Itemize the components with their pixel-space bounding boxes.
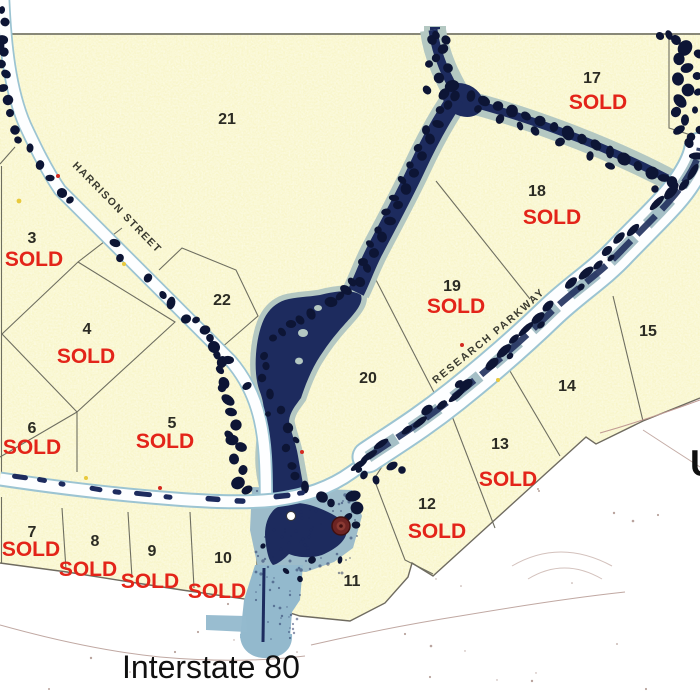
svg-text:Interstate 80: Interstate 80 bbox=[122, 649, 300, 685]
svg-text:14: 14 bbox=[558, 378, 576, 395]
svg-text:4: 4 bbox=[83, 321, 92, 338]
svg-text:9: 9 bbox=[148, 543, 157, 560]
svg-text:SOLD: SOLD bbox=[427, 295, 485, 318]
svg-text:11: 11 bbox=[344, 573, 361, 590]
svg-text:SOLD: SOLD bbox=[408, 520, 466, 543]
svg-text:18: 18 bbox=[528, 183, 546, 200]
svg-text:SOLD: SOLD bbox=[121, 570, 179, 593]
svg-text:15: 15 bbox=[639, 323, 657, 340]
svg-text:U: U bbox=[690, 443, 700, 484]
svg-text:13: 13 bbox=[491, 436, 509, 453]
svg-text:SOLD: SOLD bbox=[5, 248, 63, 271]
svg-text:SOLD: SOLD bbox=[57, 345, 115, 368]
svg-text:SOLD: SOLD bbox=[569, 91, 627, 114]
svg-text:SOLD: SOLD bbox=[188, 580, 246, 603]
svg-text:6: 6 bbox=[28, 420, 37, 437]
svg-text:SOLD: SOLD bbox=[523, 206, 581, 229]
svg-text:SOLD: SOLD bbox=[59, 558, 117, 581]
svg-text:8: 8 bbox=[91, 533, 100, 550]
svg-text:17: 17 bbox=[583, 70, 601, 87]
svg-text:SOLD: SOLD bbox=[3, 436, 61, 459]
svg-text:10: 10 bbox=[214, 550, 232, 567]
svg-text:12: 12 bbox=[418, 496, 436, 513]
svg-text:21: 21 bbox=[218, 111, 236, 128]
svg-text:3: 3 bbox=[28, 230, 37, 247]
svg-text:SOLD: SOLD bbox=[2, 538, 60, 561]
svg-text:22: 22 bbox=[213, 292, 231, 309]
svg-text:SOLD: SOLD bbox=[136, 430, 194, 453]
svg-text:19: 19 bbox=[443, 278, 461, 295]
svg-text:20: 20 bbox=[359, 370, 377, 387]
svg-text:SOLD: SOLD bbox=[479, 468, 537, 491]
